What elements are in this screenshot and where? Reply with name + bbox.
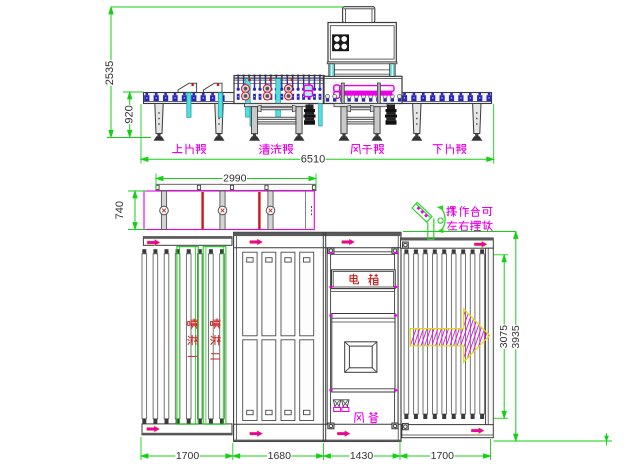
svg-text:1700: 1700 <box>176 450 200 462</box>
svg-text:2990: 2990 <box>223 173 247 185</box>
svg-text:2535: 2535 <box>104 61 116 85</box>
svg-text:1680: 1680 <box>268 450 292 462</box>
svg-text:920: 920 <box>124 105 136 123</box>
svg-text:6510: 6510 <box>301 153 325 165</box>
svg-text:3935: 3935 <box>510 325 522 349</box>
svg-text:1700: 1700 <box>431 450 455 462</box>
svg-text:740: 740 <box>114 201 126 219</box>
svg-text:1430: 1430 <box>350 450 374 462</box>
svg-text:3075: 3075 <box>498 325 510 349</box>
